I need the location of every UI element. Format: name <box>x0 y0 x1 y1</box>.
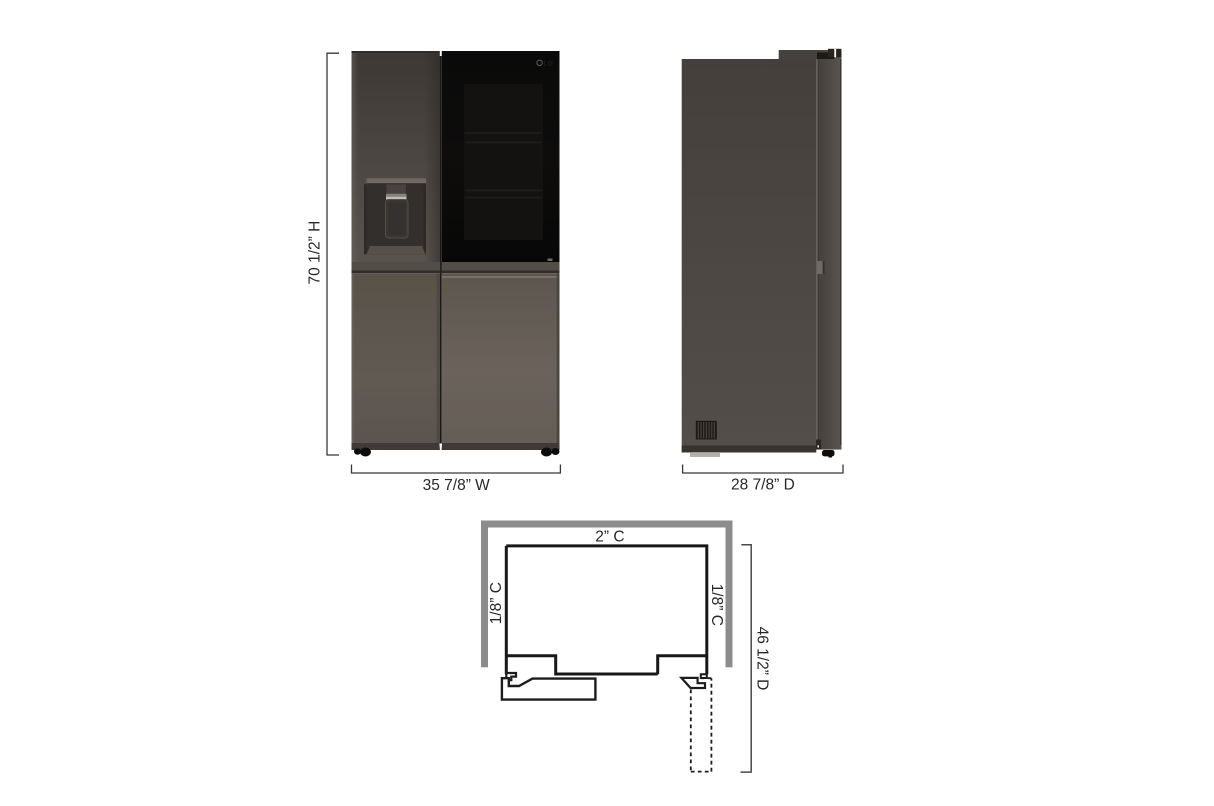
svg-text:35 7/8” W: 35 7/8” W <box>423 477 491 494</box>
svg-text:46 1/2” D: 46 1/2” D <box>753 627 770 691</box>
svg-text:70 1/2” H: 70 1/2” H <box>307 221 324 285</box>
svg-text:2” C: 2” C <box>595 529 624 546</box>
svg-text:1/8” C: 1/8” C <box>488 582 505 624</box>
svg-text:1/8” C: 1/8” C <box>708 584 725 626</box>
svg-text:LG: LG <box>544 61 553 68</box>
svg-text:28 7/8” D: 28 7/8” D <box>731 477 795 494</box>
